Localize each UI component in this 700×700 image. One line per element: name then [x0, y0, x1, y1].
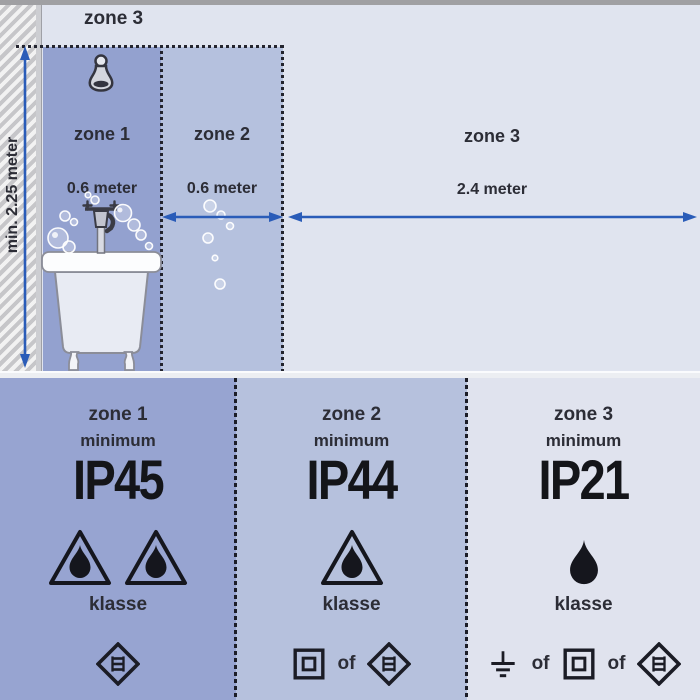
triangle-drop-icon — [320, 528, 384, 588]
section-divider — [0, 371, 700, 378]
klasse-label: klasse — [467, 594, 700, 616]
zone3-panel: zone 3 minimum IP21 klasse of of — [467, 378, 700, 700]
of-label: of — [338, 653, 356, 675]
klasse-label: klasse — [0, 594, 236, 616]
panel-divider-2 — [465, 378, 468, 700]
triangle-drop-icon — [48, 528, 112, 588]
panel-zone-label: zone 2 — [236, 404, 467, 426]
bath-faucet-icon — [84, 202, 119, 254]
class-ii-square-icon — [292, 647, 326, 681]
ip-rating-value: IP45 — [19, 452, 217, 508]
klasse-label: klasse — [236, 594, 467, 616]
zone2-panel: zone 2 minimum IP44 klasse of — [236, 378, 467, 700]
ip-rating-value: IP44 — [254, 452, 448, 508]
class-iii-diamond-icon — [96, 642, 140, 686]
earth-ground-icon — [486, 648, 520, 680]
protection-icons — [467, 524, 700, 592]
protection-icons — [0, 524, 236, 588]
height-arrow — [20, 46, 30, 368]
class-ii-square-icon — [562, 647, 596, 681]
of-label: of — [532, 653, 550, 675]
class-symbols: of — [236, 640, 467, 688]
panel-zone-label: zone 1 — [0, 404, 236, 426]
class-iii-diamond-icon — [367, 642, 411, 686]
bathroom-diagram: zone 3 min. 2.25 meter zone 1 zone 2 zon… — [0, 0, 700, 371]
zone3-width-arrow — [288, 212, 697, 222]
ip-requirements-panels: zone 1 minimum IP45 klasse zone 2 minimu… — [0, 378, 700, 700]
drop-icon — [566, 538, 602, 588]
shower-head-icon — [90, 56, 112, 91]
diagram-overlay — [0, 0, 700, 371]
protection-icons — [236, 524, 467, 588]
bathtub-icon — [42, 252, 161, 370]
panel-divider-1 — [234, 378, 237, 700]
triangle-drop-icon — [124, 528, 188, 588]
zone1-panel: zone 1 minimum IP45 klasse — [0, 378, 236, 700]
class-iii-diamond-icon — [637, 642, 681, 686]
class-symbols — [0, 640, 236, 688]
panel-zone-label: zone 3 — [467, 404, 700, 426]
class-symbols: of of — [467, 640, 700, 688]
ip-rating-value: IP21 — [486, 452, 682, 508]
of-label: of — [608, 653, 626, 675]
